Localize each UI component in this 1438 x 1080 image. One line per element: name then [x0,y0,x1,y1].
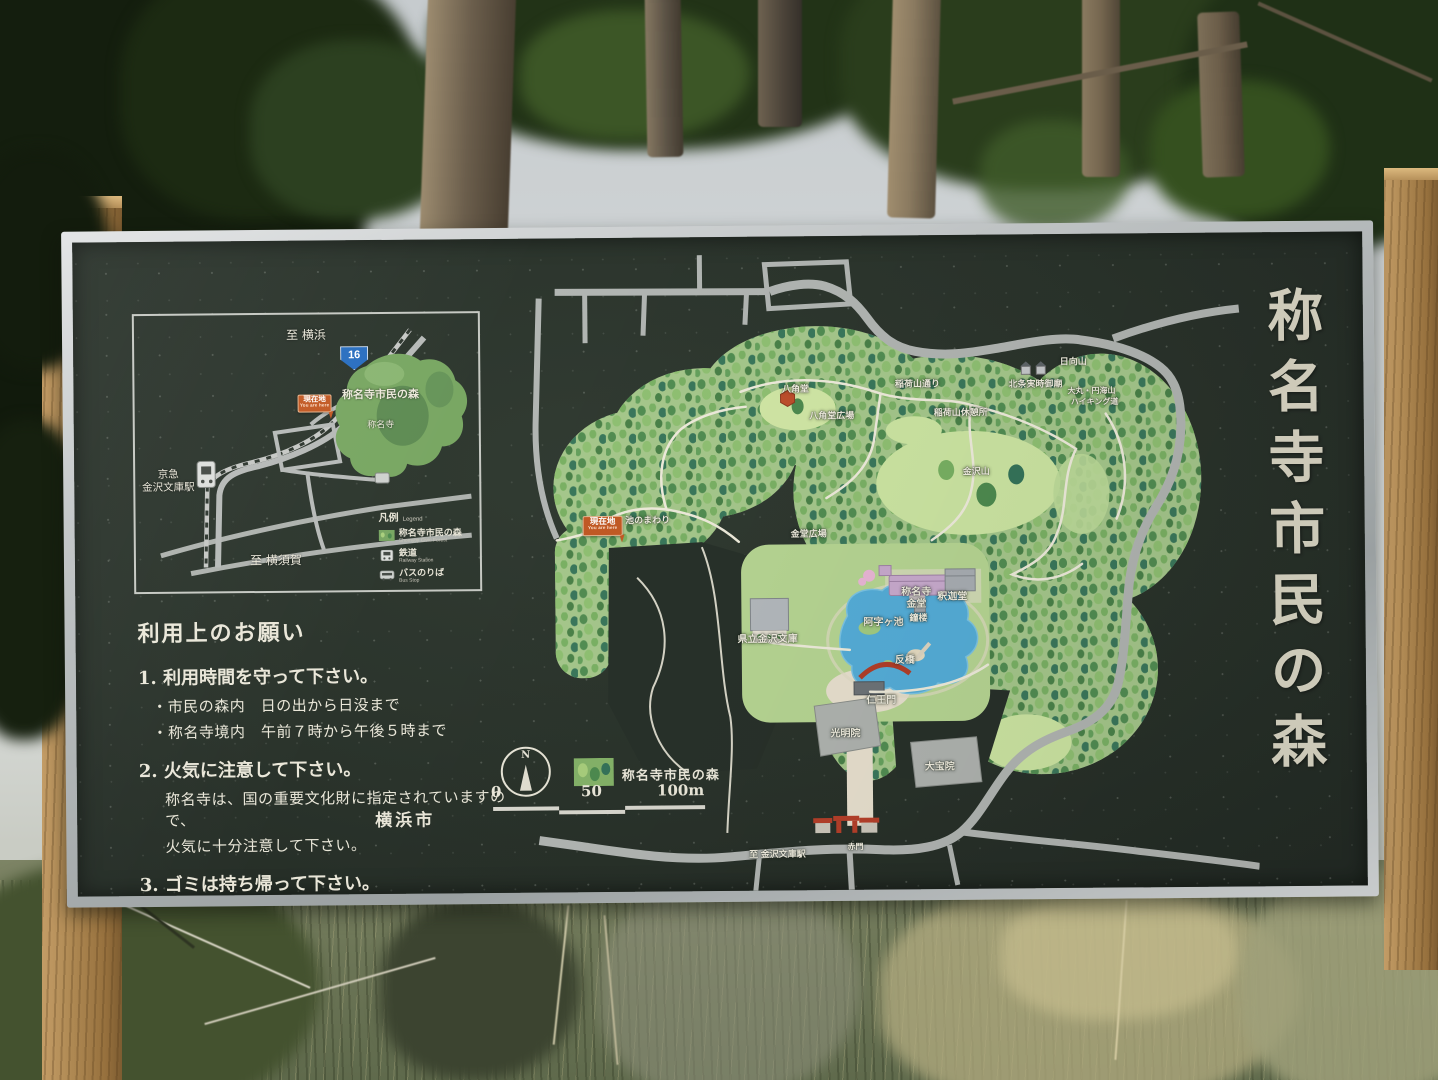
sign-board-face: 称名寺市民の森 [72,231,1368,896]
map-label-15: 釈迦堂 [937,587,967,602]
map-label-11: 県立金沢文庫 [738,630,798,646]
map-label-16: 鐘楼 [909,611,927,624]
bus-icon [379,570,395,581]
map-label-2: 稲荷山通り [895,377,940,390]
usage-rule-2: 2. 火気に注意して下さい。 [139,754,511,783]
usage-rule-2-line-2: 火気に十分注意して下さい。 [165,833,511,857]
forest-swatch-icon [379,530,395,541]
legend-item-railway: 鉄道Railway Station [379,548,475,564]
compass-needle [520,765,532,791]
legend-item-forest: 称名寺市民の森Shomyoji Civic Forest [379,528,475,544]
scale-tick-0: 0 [491,783,502,801]
train-icon [379,550,395,561]
inset-to-yokohama: 至 横浜 [286,326,326,343]
usage-title: 利用上のお願い [137,613,509,648]
usage-rule-3: 3. ゴミは持ち帰って下さい。 [140,868,512,897]
legend-title: 凡例 [379,513,399,524]
legend: 凡例Legend 称名寺市民の森Shomyoji Civic Forest 鉄道… [379,508,476,584]
map-label-20: 大宝院 [925,757,955,772]
city-signature: 横浜市 [375,805,435,831]
legend-title-en: Legend [403,517,423,523]
inset-temple-label: 称名寺 [367,417,394,430]
map-label-5: 北条実時御廟 [1008,377,1062,390]
map-label-8: 金沢山 [963,464,990,477]
scale-tick-100: 100m [657,781,704,799]
map-label-18: 仁王門 [866,691,896,706]
scale-tick-50: 50 [581,782,602,800]
north-label: N [521,750,530,761]
board-title-vertical: 称名寺市民の森 [1251,286,1337,839]
bush [600,880,860,1080]
map-label-10: 池のまわり [625,513,670,526]
map-label-4: 日向山 [1060,354,1087,367]
inset-you-are-here-marker: 現在地You are here [298,394,332,412]
inset-forest-label: 称名寺市民の森 [342,386,419,403]
map-label-14: 金堂 [906,595,926,610]
scale-bar-segments [493,805,705,816]
map-label-19: 光明院 [830,724,860,739]
usage-rule-1-line-2: ・称名寺境内 午前７時から午後５時まで [152,719,510,743]
compass-rose: N [501,746,551,796]
usage-notes: 利用上のお願い 1. 利用時間を守って下さい。 ・市民の森内 日の出から日没まで… [137,613,511,897]
map-label-6: 大丸・円海山 [1067,385,1115,396]
map-label-21: 赤門 [847,841,863,852]
map-label-3: 稲荷山休憩所 [934,405,988,418]
usage-rule-1-line-1: ・市民の森内 日の出から日没まで [152,693,510,717]
map-label-9: 金堂広場 [791,527,827,540]
inset-station-label: 京急金沢文庫駅 [142,468,195,495]
right-post [1384,180,1438,970]
map-label-0: 八角堂 [782,382,809,395]
map-label-1: 八角堂広場 [809,408,854,421]
main-map: 八角堂八角堂広場稲荷山通り稲荷山休憩所日向山北条実時御廟大丸・円海山ハイキング道… [514,242,1260,892]
usage-rule-1: 1. 利用時間を守って下さい。 [138,661,510,690]
map-you-are-here-marker: 現在地You are here [583,516,623,536]
tree-trunk [1082,0,1120,177]
inset-to-yokosuka: 至 横須賀 [250,551,302,568]
tree-trunk [887,0,941,219]
map-label-12: 阿字ヶ池 [863,613,903,628]
photo-scene: 称名寺市民の森 [0,0,1438,1080]
usage-rule-2-line-1: 称名寺は、国の重要文化財に指定されていますので、 [165,786,511,831]
map-label-22: 至 金沢文庫駅 [749,847,806,860]
legend-item-bus: バスのりばBus Stop [379,568,475,584]
inset-map-panel: 至 横浜 16 称名寺市民の森 称名寺 現在地You are here 京急金沢… [132,311,482,594]
tree-trunk [758,0,802,127]
tree-trunk [420,0,517,237]
tree-trunk [1197,11,1245,177]
inset-bus-stop-icon [375,473,389,483]
tree-trunk [645,0,684,157]
map-label-17: 反橋 [895,651,915,666]
map-labels-layer: 八角堂八角堂広場稲荷山通り稲荷山休憩所日向山北条実時御廟大丸・円海山ハイキング道… [514,242,1260,892]
map-label-7: ハイキング道 [1071,396,1119,407]
sign-board: 称名寺市民の森 [61,220,1379,907]
